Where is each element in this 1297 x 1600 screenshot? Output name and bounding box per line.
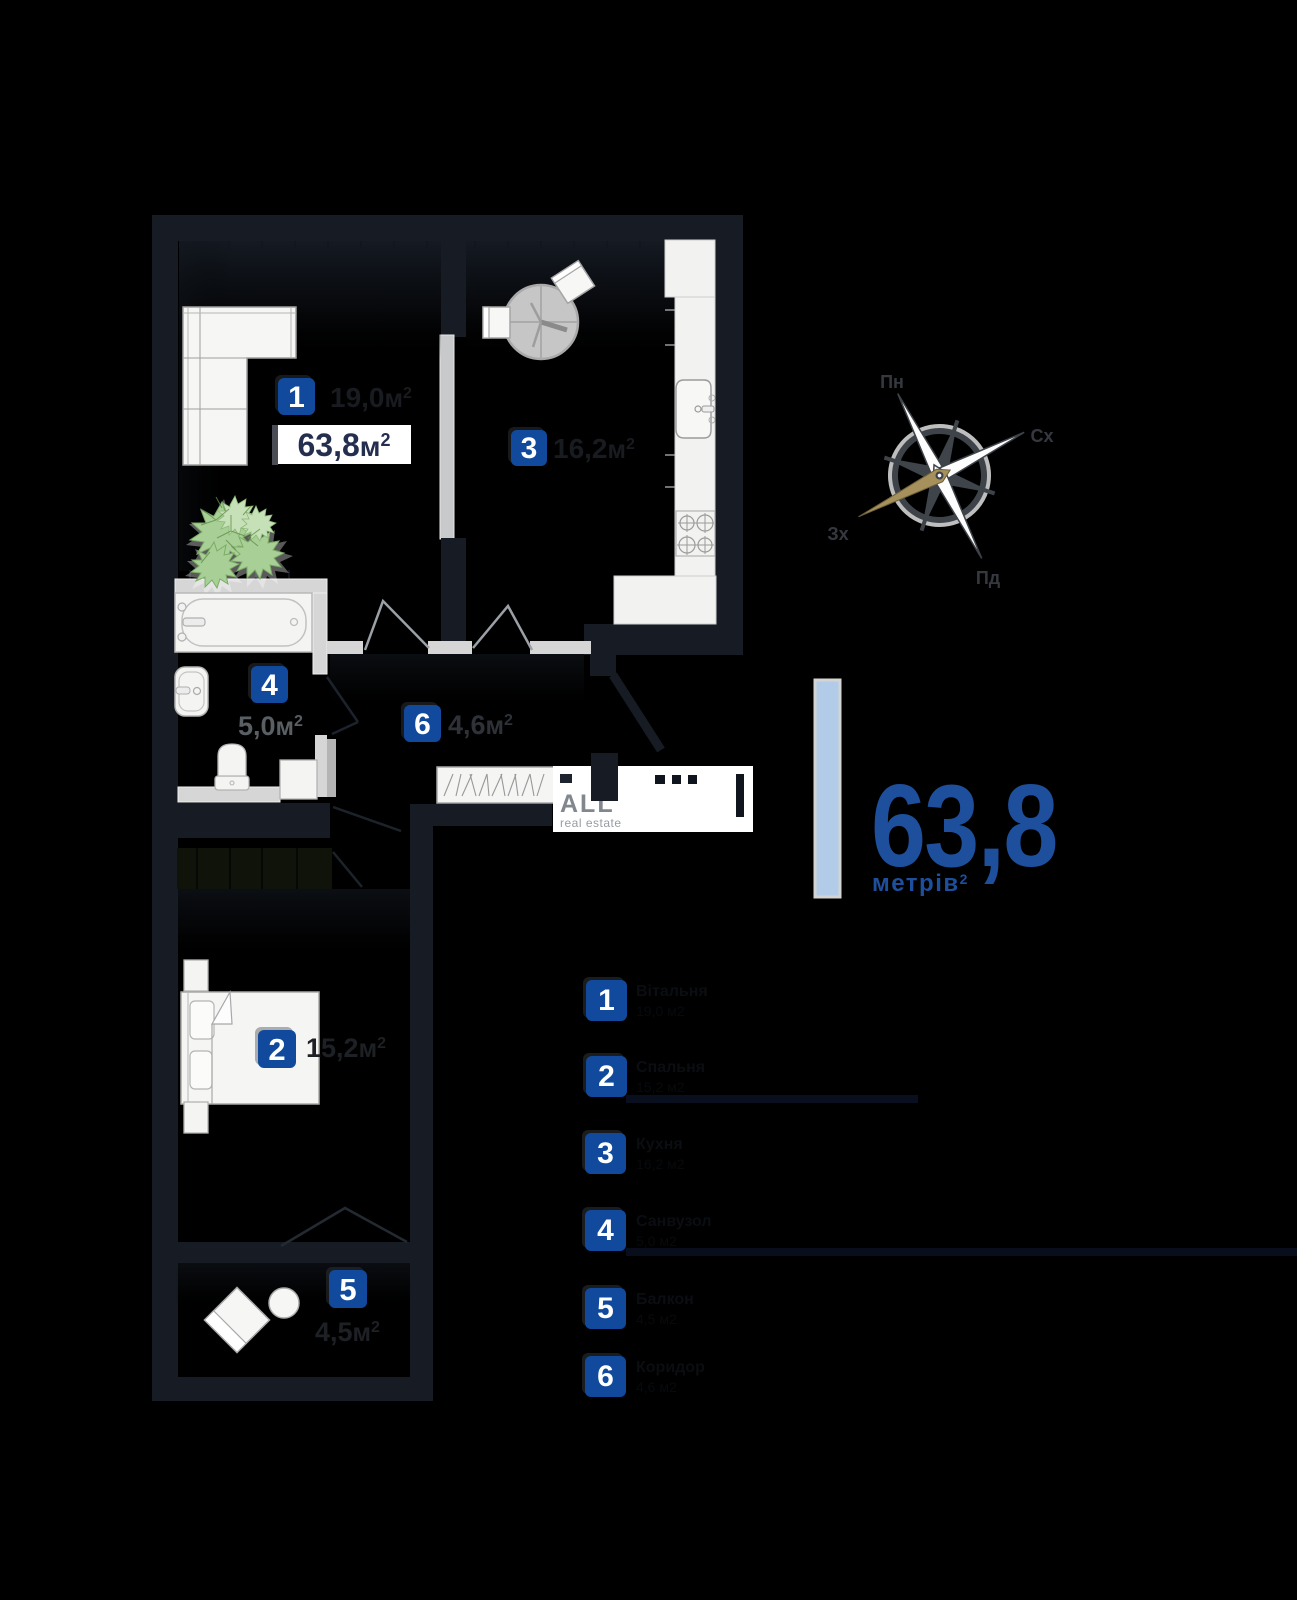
svg-text:4,5 м2: 4,5 м2	[636, 1311, 677, 1327]
svg-text:19,0м2: 19,0м2	[330, 382, 412, 413]
svg-text:16,2м2: 16,2м2	[553, 433, 635, 464]
svg-text:4,6 м2: 4,6 м2	[636, 1379, 677, 1395]
svg-text:Спальня: Спальня	[636, 1059, 705, 1076]
svg-text:5,0м2: 5,0м2	[238, 711, 303, 741]
svg-text:Пн: Пн	[880, 372, 904, 392]
svg-text:Коридор: Коридор	[636, 1359, 705, 1376]
svg-text:5: 5	[339, 1272, 356, 1307]
svg-text:19,0 м2: 19,0 м2	[636, 1003, 685, 1019]
svg-text:63,8м2: 63,8м2	[297, 427, 390, 463]
svg-text:Сх: Сх	[1030, 426, 1053, 446]
svg-text:Пд: Пд	[976, 568, 1001, 588]
svg-text:5: 5	[597, 1292, 614, 1325]
svg-text:4: 4	[261, 669, 278, 702]
svg-text:3: 3	[521, 432, 538, 465]
svg-text:5,0 м2: 5,0 м2	[636, 1233, 677, 1249]
svg-text:6: 6	[597, 1360, 614, 1393]
svg-text:Вітальня: Вітальня	[636, 983, 708, 1000]
svg-text:1: 1	[598, 984, 615, 1017]
svg-text:real estate: real estate	[560, 816, 622, 830]
svg-text:15,2 м2: 15,2 м2	[636, 1079, 685, 1095]
svg-text:15,2м2: 15,2м2	[306, 1033, 386, 1063]
svg-text:3: 3	[597, 1137, 614, 1170]
svg-text:2: 2	[598, 1060, 615, 1093]
svg-text:Зх: Зх	[827, 524, 848, 544]
svg-text:1: 1	[288, 381, 305, 414]
svg-text:4: 4	[597, 1214, 614, 1247]
svg-text:Балкон: Балкон	[636, 1291, 694, 1308]
svg-text:6: 6	[414, 708, 431, 741]
svg-text:2: 2	[268, 1032, 285, 1067]
svg-text:16,2 м2: 16,2 м2	[636, 1156, 685, 1172]
svg-text:4,6м2: 4,6м2	[448, 710, 513, 740]
svg-text:метрів2: метрів2	[872, 870, 969, 897]
svg-text:Кухня: Кухня	[636, 1136, 683, 1153]
svg-text:Санвузол: Санвузол	[636, 1213, 712, 1230]
svg-text:4,5м2: 4,5м2	[315, 1317, 380, 1347]
